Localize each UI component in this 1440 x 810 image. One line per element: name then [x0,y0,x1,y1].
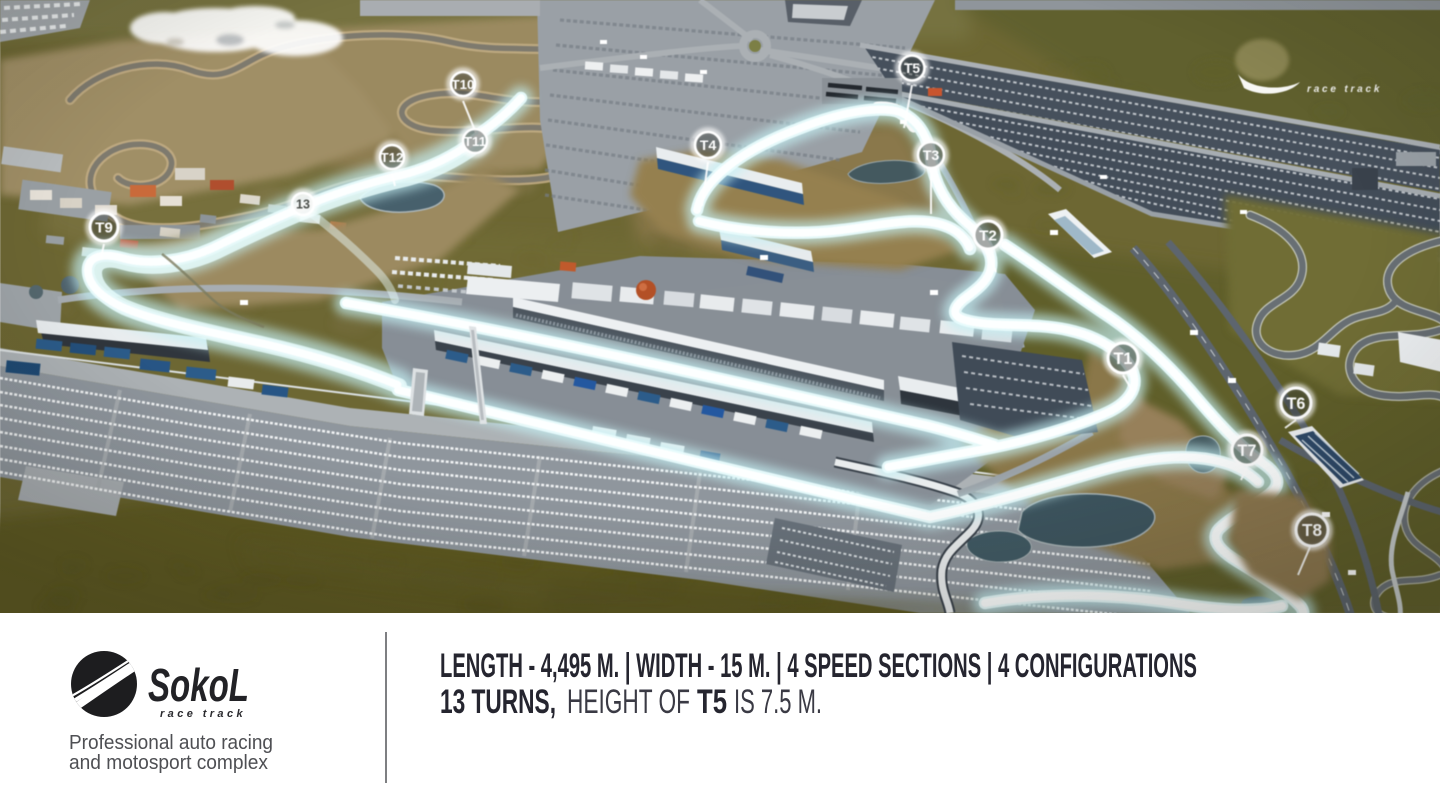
svg-text:LENGTH - 4,495 M. | WIDTH -: LENGTH - 4,495 M. | WIDTH - 15 M. | 4 SP… [440,647,1197,685]
svg-text:T5: T5 [697,683,727,721]
svg-text:and motosport complex: and motosport complex [69,751,269,774]
svg-text:race track: race track [160,708,246,720]
svg-text:HEIGHT OF: HEIGHT OF [567,683,690,721]
svg-text:IS 7.5 M.: IS 7.5 M. [734,683,822,721]
svg-text:SokoL: SokoL [148,659,249,711]
svg-text:13 TURNS,: 13 TURNS, [440,683,556,721]
